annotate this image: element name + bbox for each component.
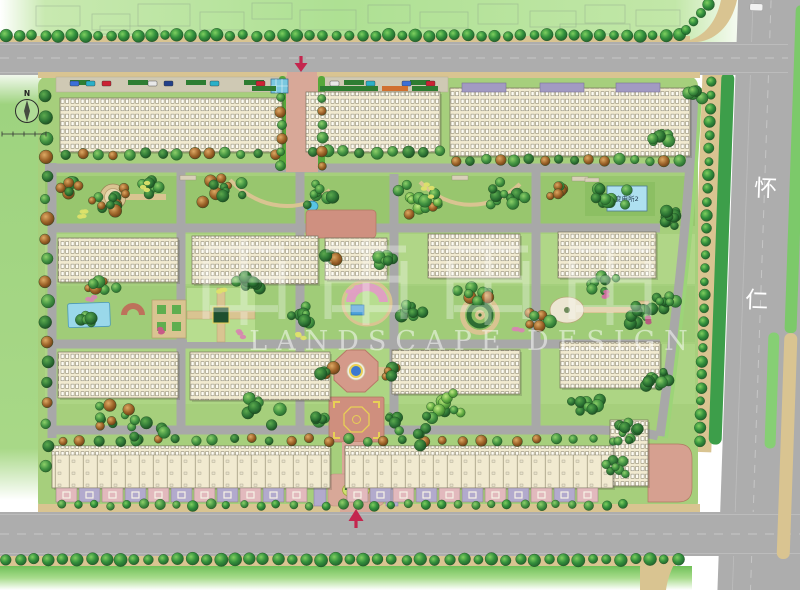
road-name-char-top: 怀 <box>754 176 778 203</box>
context-strip-left <box>0 70 40 500</box>
master-plan-page: 怀 仁 <box>0 0 800 590</box>
road-name-char-bottom: 仁 <box>745 288 769 315</box>
grand-plaza <box>329 397 384 442</box>
context-strip-bottom <box>0 566 692 590</box>
watermark-text: LANDSCAPE DESIGN <box>249 326 697 357</box>
corner-plaza <box>648 444 692 502</box>
axis-plaza-upper <box>306 210 376 238</box>
master-plan-canvas: 怀 仁 <box>0 0 800 590</box>
car-on-road <box>750 3 763 10</box>
tan-court <box>152 300 186 338</box>
fountain <box>350 365 362 377</box>
north-label: N <box>24 89 30 98</box>
